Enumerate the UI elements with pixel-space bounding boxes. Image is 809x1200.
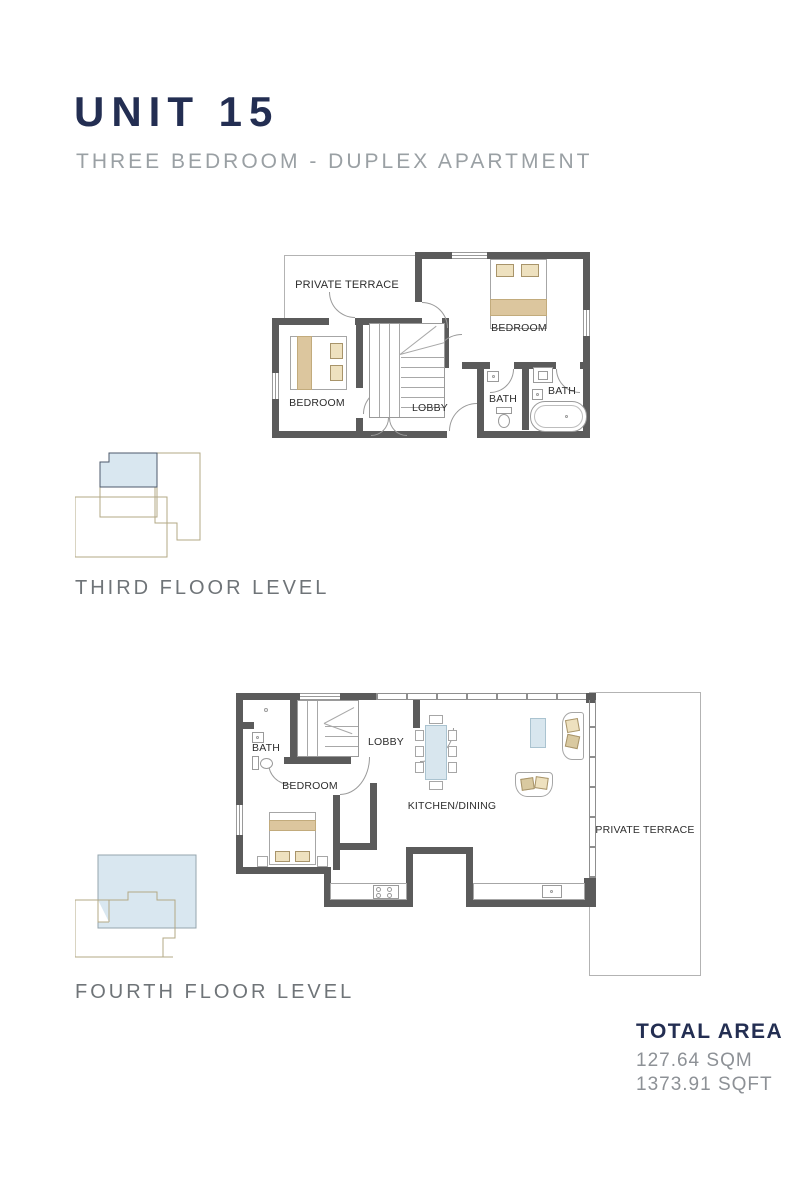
room-label-bath: BATH [242,742,290,754]
vanity-basin [538,371,548,380]
pillow [496,264,514,277]
wall [333,795,340,870]
stove-burner [387,893,392,898]
window [236,805,243,835]
wall [466,847,473,907]
bathtub-drain [565,415,568,418]
room-label-private-terrace: PRIVATE TERRACE [272,279,422,291]
room-label-private-terrace: PRIVATE TERRACE [589,824,701,836]
page-subtitle: THREE BEDROOM - DUPLEX APARTMENT [76,150,592,174]
wall [406,847,413,907]
tv-cabinet [530,718,546,748]
wall [466,900,591,907]
wall [333,843,377,850]
bathtub [530,401,587,432]
sink-drain [492,375,495,378]
wall [272,318,329,325]
wall [370,783,377,843]
room-label-lobby: LOBBY [354,736,418,748]
wall [272,431,447,438]
shower-drain [264,708,268,712]
floor-plan-sheet: UNIT 15 THREE BEDROOM - DUPLEX APARTMENT [0,0,809,1200]
room-label-kitchen-dining: KITCHEN/DINING [382,800,522,812]
dining-chair [448,730,457,741]
window [272,373,279,399]
fourth-floor-caption: FOURTH FLOOR LEVEL [75,981,354,1004]
wall [236,693,243,874]
bed-blanket [297,336,312,390]
wall [356,418,363,431]
toilet-bowl [260,758,273,769]
wall [413,700,420,728]
toilet-tank [496,407,512,414]
room-label-bath: BATH [481,393,525,405]
wall [236,722,254,729]
third-floor-key-plan [75,447,290,562]
window [300,693,340,700]
window [583,310,590,336]
key-building-outline [100,487,157,517]
toilet-bowl [498,414,510,428]
key-building-outline [75,497,167,557]
stair-winder-line [400,326,437,355]
glass-wall [376,693,588,700]
door-gap [556,362,580,369]
stair-winder-line [324,707,354,724]
room-label-lobby: LOBBY [400,402,460,414]
kitchen-counter [473,883,585,900]
room-label-bedroom: BEDROOM [270,780,350,792]
sofa-pillow [520,777,535,791]
stove-burner [387,887,392,892]
wall [324,900,413,907]
sink-drain [256,736,259,739]
third-floor-caption: THIRD FLOOR LEVEL [75,577,329,600]
pillow [330,343,343,359]
wall [406,847,473,854]
wall [419,252,590,259]
dining-chair [448,746,457,757]
room-label-bedroom: BEDROOM [469,322,569,334]
dining-chair [429,781,443,790]
pillow [330,365,343,381]
sofa-pillow [565,734,580,749]
fourth-floor-key-plan [75,852,310,977]
total-area-sqm: 127.64 SQM [636,1050,753,1072]
pillow [521,264,539,277]
page-title: UNIT 15 [74,88,279,136]
bed-blanket [490,299,547,316]
window [452,252,487,259]
dining-chair [429,715,443,724]
third-floor-plan: PRIVATE TERRACE BEDROOM BEDROOM LOBBY BA… [272,233,592,440]
dining-table [425,725,447,780]
staircase [297,700,359,757]
stove-burner [376,887,381,892]
room-label-bedroom: BEDROOM [272,397,362,409]
wall [340,693,376,700]
wall [415,252,422,302]
dining-chair [415,762,424,773]
stair-treads [298,701,325,756]
stair-treads [370,324,401,417]
wall [236,693,300,700]
dining-chair [448,762,457,773]
sofa-pillow [534,776,549,790]
sofa-pillow [565,718,580,733]
nightstand [317,856,328,867]
room-label-bath: BATH [534,385,590,397]
sink-drain [550,890,553,893]
stove-burner [376,893,381,898]
toilet-tank [252,756,259,770]
key-unit-highlight [100,453,157,487]
wall [356,318,363,388]
door-gap [490,362,514,369]
total-area-sqft: 1373.91 SQFT [636,1074,773,1096]
bathtub-inner [534,405,583,428]
total-area-heading: TOTAL AREA [636,1020,783,1044]
wall [477,431,590,438]
bed-blanket [269,820,316,831]
wall [290,700,297,763]
glass-wall [589,700,596,878]
